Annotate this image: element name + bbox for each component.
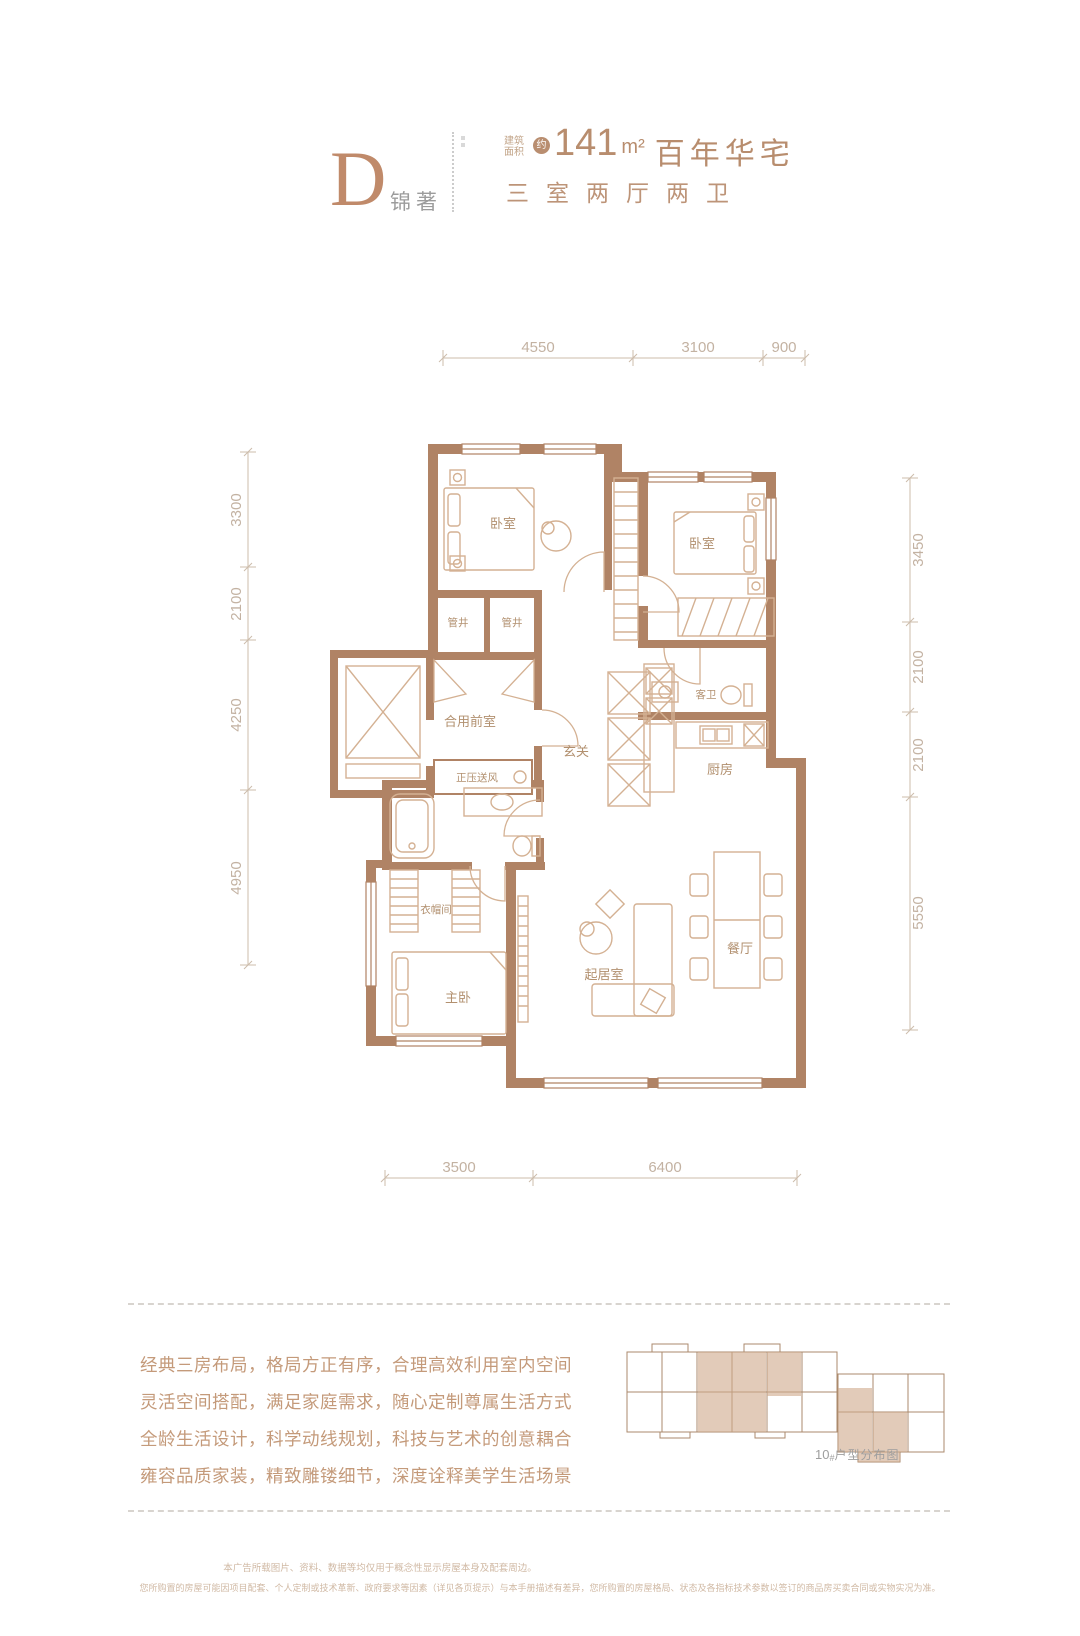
room-label-foyer: 玄关	[563, 744, 589, 759]
living-furniture	[518, 890, 674, 1022]
dim-top-3: 900	[771, 339, 796, 356]
keyplan-caption: 10#户型分布图	[815, 1446, 900, 1464]
room-label-kitchen: 厨房	[707, 762, 733, 777]
dashed-divider-top	[128, 1303, 950, 1305]
keyplan-diagram	[627, 1344, 944, 1462]
room-label-bedroom2: 卧室	[689, 536, 715, 551]
marketing-line-4: 雍容品质家装，精致雕镂细节，深度诠释美学生活场景	[140, 1463, 580, 1500]
marketing-line-2: 灵活空间搭配，满足家庭需求，随心定制尊属生活方式	[140, 1389, 580, 1426]
dashed-divider-bottom	[128, 1510, 950, 1512]
dim-left-1: 3300	[228, 493, 245, 526]
room-label-guestbath: 客卫	[696, 688, 717, 701]
keyplan-building-number: 10	[815, 1447, 829, 1462]
bathroom-fixtures	[390, 788, 542, 858]
room-label-airsupply: 正压送风	[456, 771, 498, 784]
dim-bottom-2: 6400	[648, 1159, 681, 1176]
closet-wardrobes	[390, 870, 480, 932]
dim-left-4: 4950	[228, 861, 245, 894]
room-label-vestibule: 合用前室	[444, 714, 496, 729]
dim-top-1: 4550	[521, 339, 554, 356]
dim-right-3: 2100	[910, 738, 927, 771]
dim-top-2: 3100	[681, 339, 714, 356]
room-label-shaft1: 管井	[448, 616, 469, 629]
dimension-lines	[240, 350, 918, 1186]
room-label-bedroom1: 卧室	[490, 516, 516, 531]
hallway-closet	[614, 478, 638, 640]
dim-right-1: 3450	[910, 533, 927, 566]
room-label-dining: 餐厅	[727, 941, 753, 956]
dim-right-4: 5550	[910, 896, 927, 929]
room-label-master: 主卧	[445, 990, 471, 1005]
dim-left-2: 2100	[228, 587, 245, 620]
marketing-line-3: 全龄生活设计，科学动线规划，科技与艺术的创意耦合	[140, 1426, 580, 1463]
disclaimer-line-1: 本广告所载图片、资料、数据等均仅用于概念性显示房屋本身及配套周边。	[0, 1560, 760, 1574]
brochure-page: D 锦著 建筑 面积 约 141 m² 百年华宅 三室两厅两卫	[0, 0, 1080, 1636]
dim-bottom-1: 3500	[442, 1159, 475, 1176]
walls	[330, 444, 806, 1088]
bedroom2-furniture	[674, 494, 774, 636]
dim-left-3: 4250	[228, 698, 245, 731]
room-label-shaft2: 管井	[502, 616, 523, 629]
keyplan-caption-label: 户型分布图	[834, 1448, 899, 1462]
disclaimer-line-2: 您所购置的房屋可能因项目配套、个人定制或技术革新、政府要求等因素（详见各页提示）…	[60, 1581, 1020, 1594]
room-label-living: 起居室	[584, 967, 623, 982]
dim-right-2: 2100	[910, 650, 927, 683]
marketing-line-1: 经典三房布局，格局方正有序，合理高效利用室内空间	[140, 1352, 580, 1389]
dining-furniture	[690, 852, 782, 988]
marketing-copy: 经典三房布局，格局方正有序，合理高效利用室内空间 灵活空间搭配，满足家庭需求，随…	[140, 1352, 580, 1500]
room-label-closet: 衣帽间	[420, 903, 452, 916]
elevator	[346, 666, 420, 778]
